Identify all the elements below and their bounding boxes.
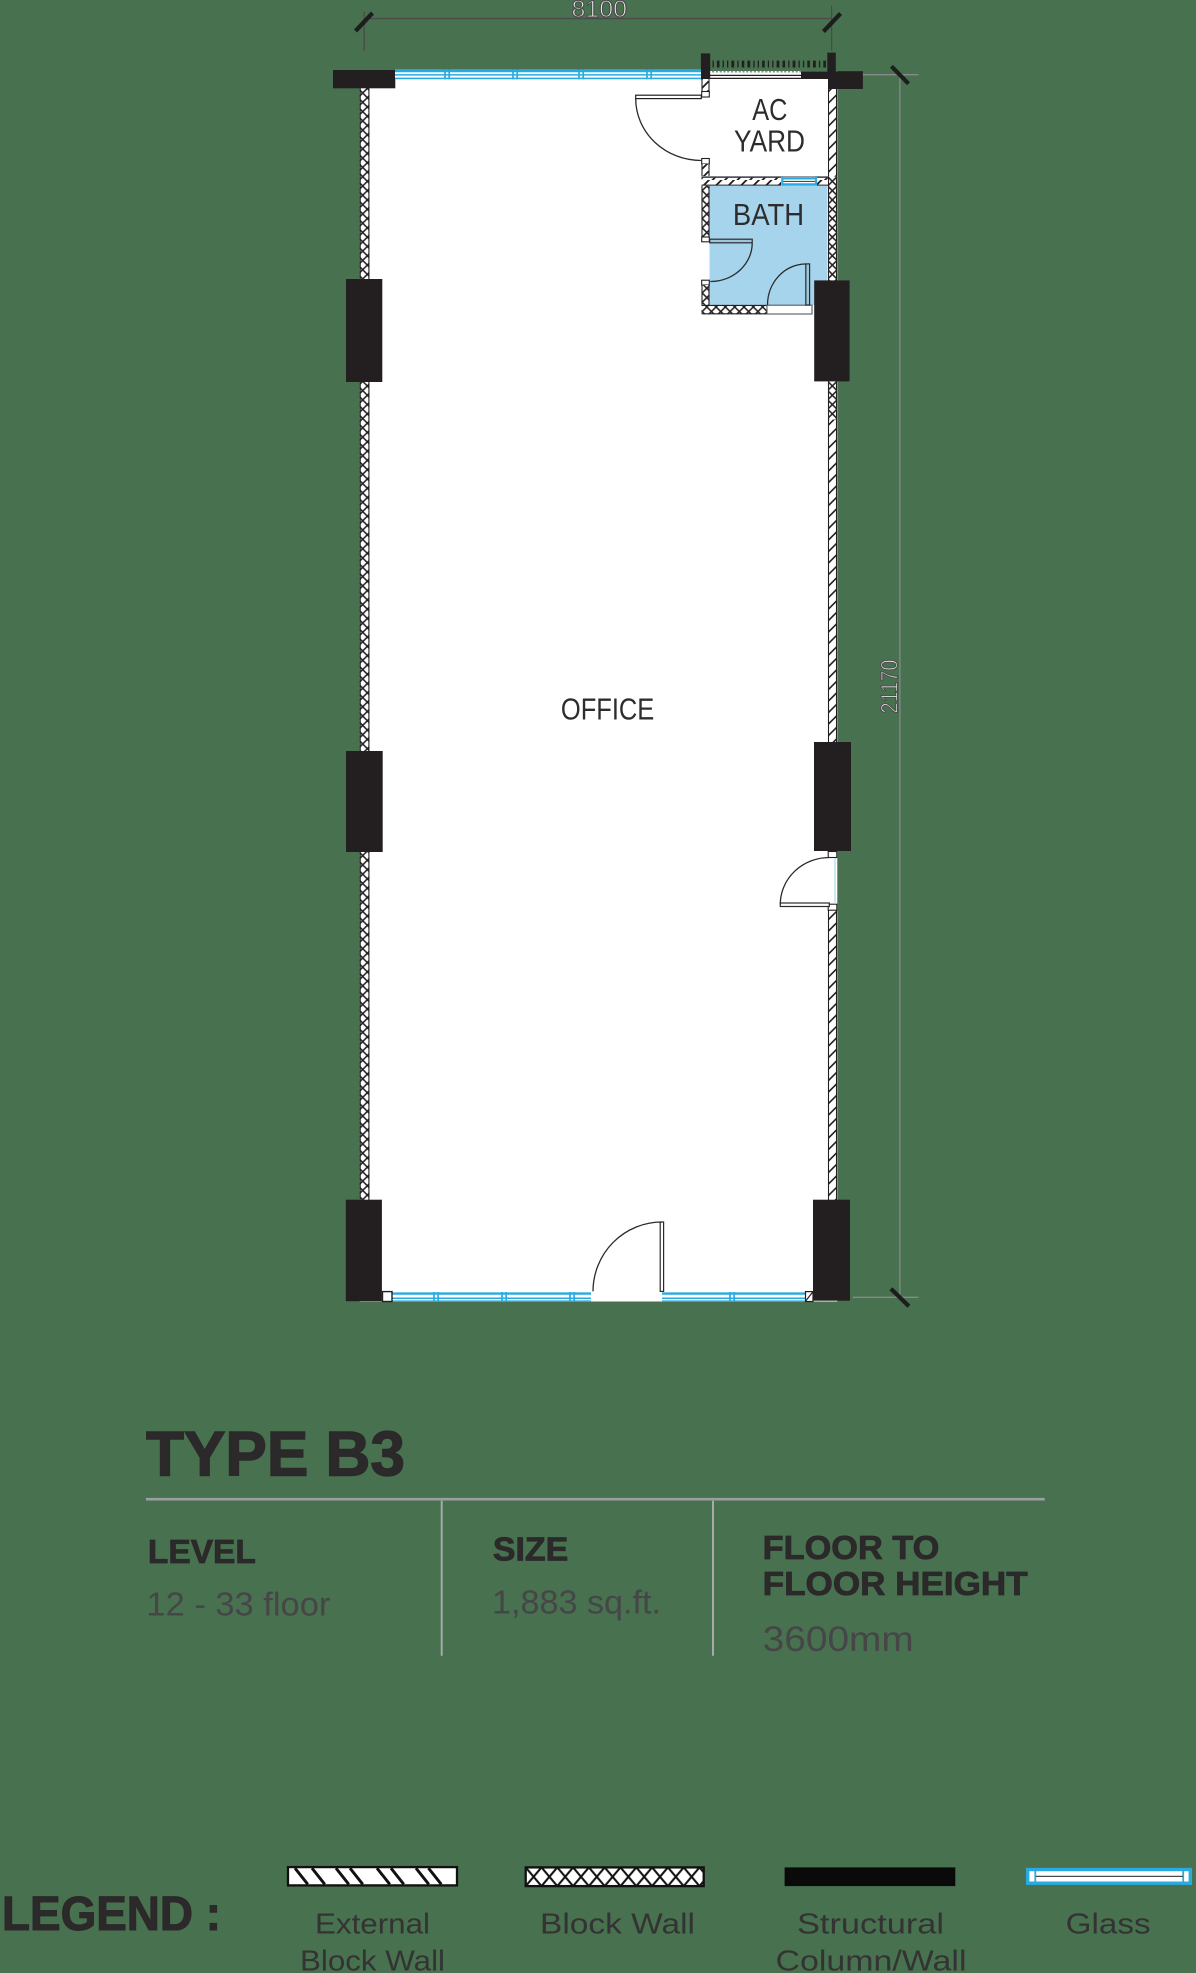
svg-text:FLOOR HEIGHT: FLOOR HEIGHT xyxy=(763,1565,1028,1602)
svg-text:3600mm: 3600mm xyxy=(763,1619,914,1659)
svg-text:Structural: Structural xyxy=(797,1908,944,1940)
svg-text:Glass: Glass xyxy=(1066,1908,1151,1940)
svg-text:LEGEND :: LEGEND : xyxy=(2,1887,221,1941)
svg-text:12 - 33 floor: 12 - 33 floor xyxy=(146,1586,330,1623)
svg-text:LEVEL: LEVEL xyxy=(148,1533,256,1570)
svg-text:BATH: BATH xyxy=(733,197,804,232)
svg-text:TYPE B3: TYPE B3 xyxy=(146,1420,405,1490)
svg-text:FLOOR TO: FLOOR TO xyxy=(763,1529,940,1566)
svg-text:8100: 8100 xyxy=(572,0,628,23)
svg-text:AC: AC xyxy=(752,92,787,127)
svg-text:SIZE: SIZE xyxy=(493,1531,568,1568)
svg-text:External: External xyxy=(315,1908,430,1940)
svg-text:21170: 21170 xyxy=(877,660,904,714)
svg-text:YARD: YARD xyxy=(734,124,805,159)
svg-text:Column/Wall: Column/Wall xyxy=(776,1945,967,1973)
svg-text:OFFICE: OFFICE xyxy=(561,691,654,726)
svg-text:1,883 sq.ft.: 1,883 sq.ft. xyxy=(492,1585,661,1622)
svg-text:Block Wall: Block Wall xyxy=(300,1945,445,1973)
svg-text:Block Wall: Block Wall xyxy=(540,1908,695,1940)
